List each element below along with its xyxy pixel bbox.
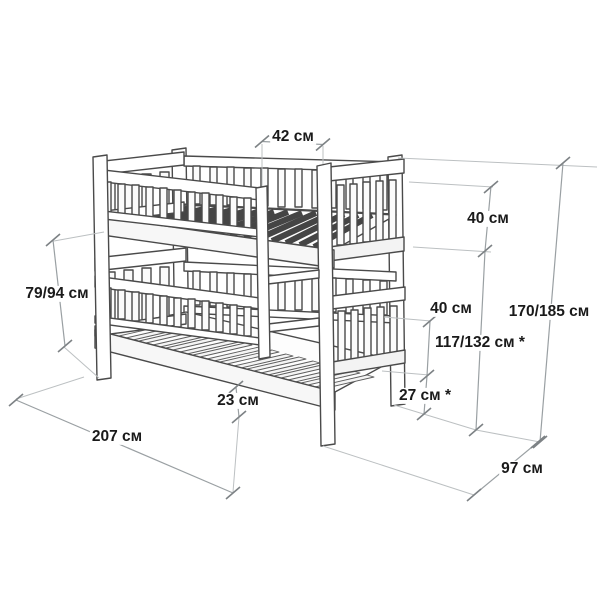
dim-label-lower-frame-height: 27 см *: [397, 388, 453, 404]
lower-footboard: [332, 287, 405, 375]
dimension-drawing-canvas: 42 см 40 см 79/94 см 40 см 170/185 см 11…: [0, 0, 600, 600]
upper-footboard: [329, 159, 404, 261]
dim-label-bed-width: 97 см: [499, 461, 545, 477]
dim-label-ladder-opening-width: 42 см: [270, 129, 316, 145]
dim-label-upper-frame-underside-height: 117/132 см *: [433, 335, 527, 351]
dim-label-total-height: 170/185 см: [507, 304, 591, 320]
dim-label-under-upper-bunk-clearance: 79/94 см: [23, 286, 90, 302]
dim-label-lower-frame-floor-clearance: 23 см: [215, 393, 261, 409]
dim-label-upper-guard-height: 40 см: [465, 211, 511, 227]
ladder-post: [256, 186, 270, 359]
dim-label-bed-length: 207 см: [90, 429, 144, 445]
dim-label-lower-guard-height: 40 см: [428, 301, 474, 317]
dim-line-bed-length: [16, 400, 233, 493]
